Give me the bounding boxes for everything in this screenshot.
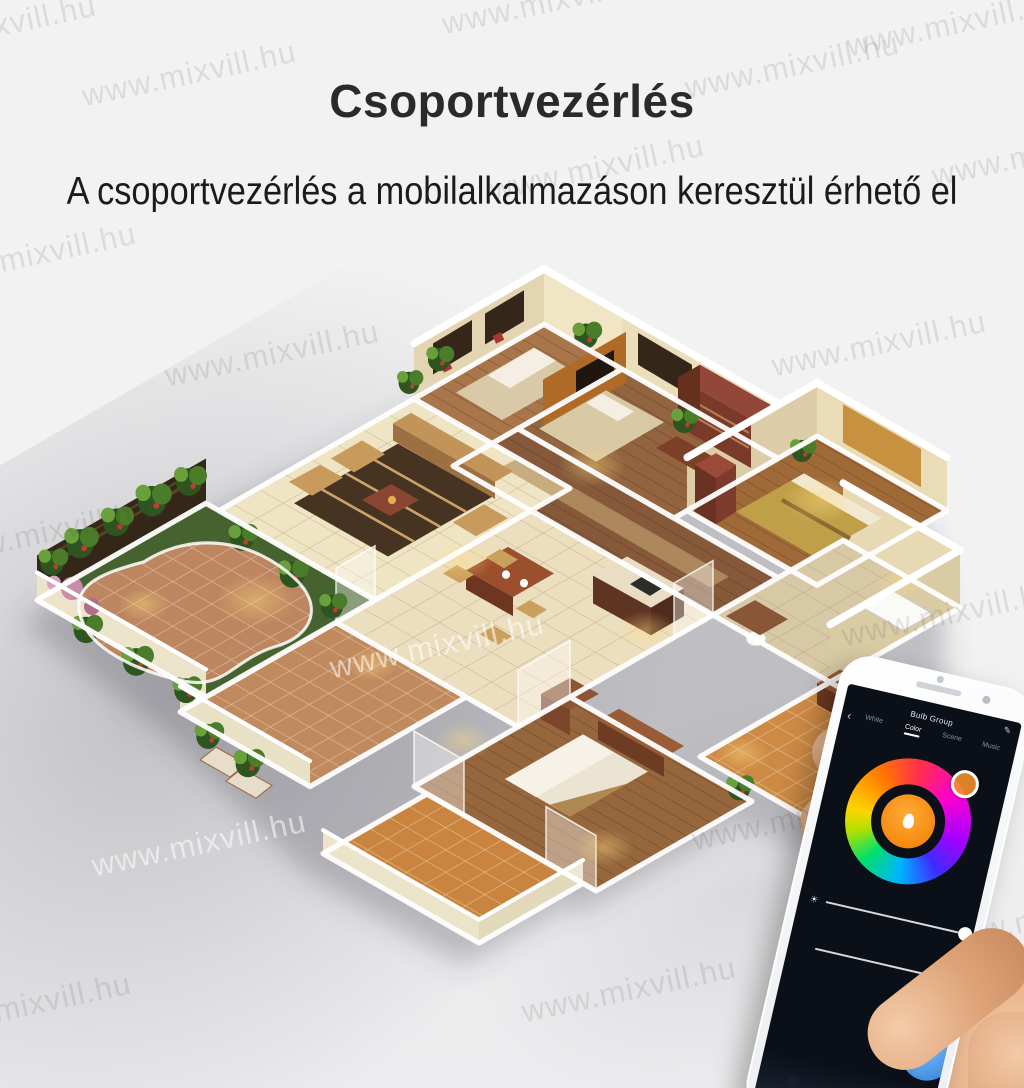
drop-icon: [798, 945, 808, 947]
marketing-image: Csoportvezérlés A csoportvezérlés a mobi…: [0, 0, 1024, 1088]
color-selector-handle[interactable]: [948, 767, 982, 801]
slider-track[interactable]: [826, 901, 970, 936]
edit-icon[interactable]: ✎: [1002, 725, 1012, 737]
bulb-icon: [902, 812, 916, 829]
front-camera-icon: [936, 675, 944, 683]
tab-white[interactable]: White: [854, 712, 893, 730]
earpiece-icon: [916, 681, 962, 697]
brightness-slider[interactable]: ☀: [807, 890, 970, 942]
tab-color[interactable]: Color: [893, 721, 932, 739]
sensor-dot-icon: [982, 695, 992, 705]
tab-music[interactable]: Music: [971, 739, 1010, 757]
sun-icon: ☀: [808, 893, 820, 906]
back-chevron-icon[interactable]: ‹: [846, 710, 852, 721]
color-wheel[interactable]: [833, 746, 984, 897]
page-title: Csoportvezérlés: [0, 74, 1024, 128]
tab-scene[interactable]: Scene: [932, 730, 971, 748]
page-subtitle: A csoportvezérlés a mobilalkalmazáson ke…: [61, 170, 962, 214]
